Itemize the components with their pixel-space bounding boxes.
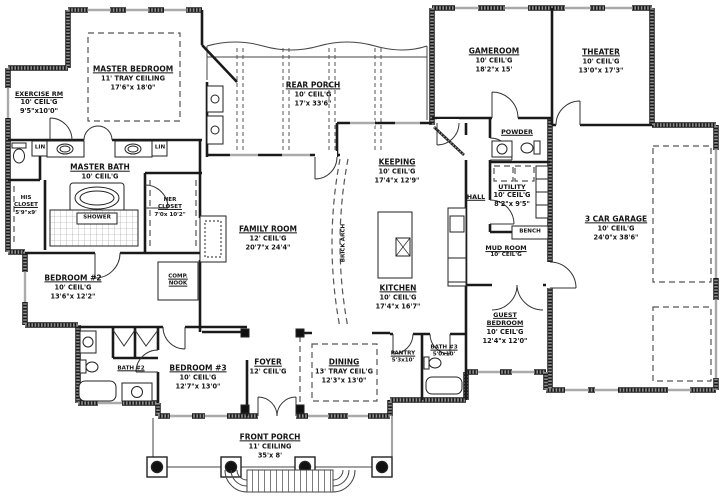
room-label-comp-nook: COMP. NOOK <box>168 274 188 289</box>
master-toilet-tank <box>12 143 26 148</box>
bath2-vanity <box>80 331 96 353</box>
garage-bay-2-outline <box>653 307 711 381</box>
label-bench: BENCH <box>519 228 541 235</box>
room-label-her-closet: HER CLOSET 7'0x 10'2" <box>154 197 185 219</box>
room-label-hall: HALL <box>467 193 485 201</box>
room-label-foyer: FOYER 12' CEIL'G <box>250 358 287 377</box>
room-label-master-bedroom: MASTER BEDROOM 11' TRAY CEILING 17'6"x 1… <box>93 64 173 91</box>
room-label-exercise: EXERCISE RM 10' CEIL'G 9'5"x10'0" <box>15 90 63 116</box>
room-label-gameroom: GAMEROOM 10' CEIL'G 18'2"x 15' <box>469 46 520 73</box>
bath3-tub <box>426 377 462 394</box>
room-label-kitchen: KITCHEN 10' CEIL'G 17'4"x 16'7" <box>376 283 421 310</box>
floor-plan: MASTER BEDROOM 11' TRAY CEILING 17'6"x 1… <box>0 0 725 503</box>
foyer-post <box>241 405 249 413</box>
room-label-dining: DINING 13' TRAY CEIL'G 12'3"x 13'0" <box>315 357 373 384</box>
room-label-mud-room: MUD ROOM 10' CEIL'G <box>485 244 526 260</box>
room-label-master-bath: MASTER BATH 10' CEIL'G <box>70 163 130 182</box>
bath2-toilet <box>86 362 98 372</box>
room-label-theater: THEATER 10' CEIL'G 13'0"x 17'3" <box>579 47 624 74</box>
room-label-family-room: FAMILY ROOM 12' CEIL'G 20'7"x 24'4" <box>239 224 297 251</box>
foyer-post <box>241 329 249 337</box>
refrigerator <box>448 258 466 282</box>
bath2-toilet-tank <box>80 360 86 373</box>
label-lin-right: LIN <box>155 144 165 151</box>
room-label-pantry: PANTRY 5'3x10' <box>391 351 415 366</box>
label-lin-left: LIN <box>35 144 45 151</box>
front-steps <box>225 470 355 492</box>
room-label-garage: 3 CAR GARAGE 10' CEIL'G 24'0"x 38'6" <box>585 214 647 241</box>
porch-counter <box>207 116 223 144</box>
garage-bay-1-outline <box>653 146 711 282</box>
room-label-powder: POWDER <box>501 128 533 136</box>
room-label-bedroom3: BEDROOM #3 10' CEIL'G 12'7"x 13'0" <box>169 363 226 390</box>
washer-outline <box>494 166 513 181</box>
porch-grill-counter <box>207 86 223 112</box>
foyer-post <box>296 329 304 337</box>
master-toilet <box>14 149 25 163</box>
bath3-toilet-tank <box>424 357 429 369</box>
room-label-bath2: BATH #2 <box>117 365 144 372</box>
bath2-tub <box>79 381 116 401</box>
family-room-fireplace <box>200 216 226 262</box>
room-label-utility: UTILITY 10' CEIL'G 8'2"x 9'5" <box>494 183 531 209</box>
brick-arch-line <box>332 159 340 328</box>
room-label-bedroom2: BEDROOM #2 10' CEIL'G 13'6"x 12'2" <box>44 273 101 300</box>
room-label-front-porch: FRONT PORCH 11' CEILING 35'x 8' <box>240 432 301 459</box>
room-label-keeping: KEEPING 10' CEIL'G 17'4"x 12'9" <box>375 157 420 184</box>
dryer-outline <box>515 166 534 181</box>
powder-vanity <box>492 141 512 157</box>
foyer-post <box>296 405 304 413</box>
bath3-toilet <box>429 358 441 368</box>
room-label-bath3: BATH #3 5'0x10' <box>430 345 457 360</box>
room-label-rear-porch: REAR PORCH 10' CEIL'G 17'x 33'6" <box>286 80 341 107</box>
label-shower: SHOWER <box>83 214 111 221</box>
room-label-guest-bedroom: GUEST BEDROOM 10' CEIL'G 12'4"x 12'0" <box>483 311 528 345</box>
bath2-vanity2 <box>122 383 152 401</box>
room-label-his-closet: HIS CLOSET 5'9"x9' <box>14 195 38 217</box>
powder-toilet <box>521 143 533 153</box>
powder-toilet-tank <box>534 141 540 154</box>
label-brick-arch: BRICK ARCH <box>340 224 347 262</box>
